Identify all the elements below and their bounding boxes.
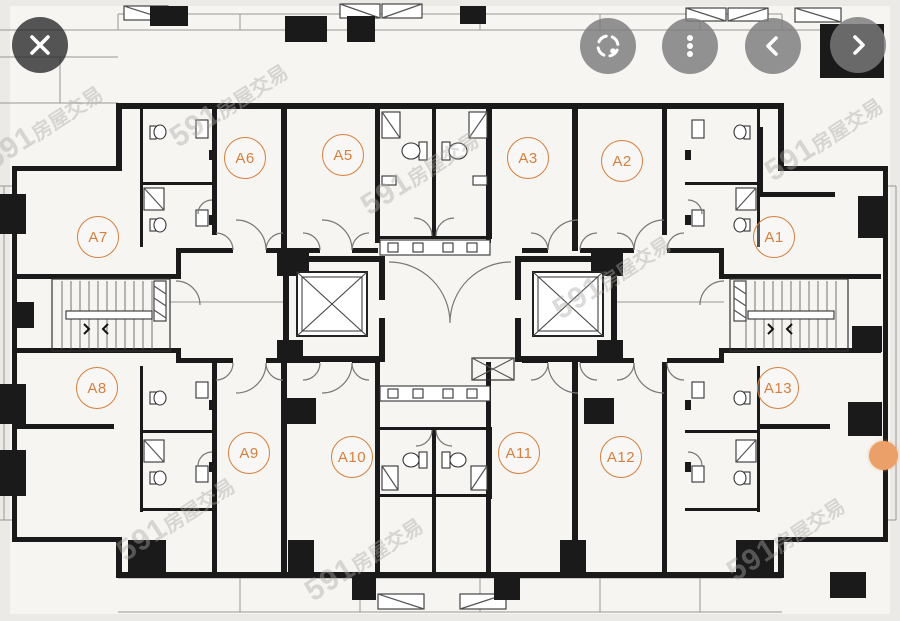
floor-area — [10, 6, 890, 614]
page-indicator-dot — [869, 441, 898, 470]
chevron-right-icon — [844, 31, 872, 59]
unit-label-a11: A11 — [498, 432, 540, 474]
close-icon — [27, 32, 53, 58]
unit-label-a8: A8 — [76, 367, 118, 409]
unit-label-a10: A10 — [331, 436, 373, 478]
scan-button[interactable] — [580, 18, 636, 74]
next-button[interactable] — [830, 17, 886, 73]
scan-icon — [593, 31, 623, 61]
unit-label-a12: A12 — [600, 436, 642, 478]
chevron-left-icon — [759, 32, 787, 60]
unit-label-a13: A13 — [757, 367, 799, 409]
kebab-menu-icon — [676, 32, 704, 60]
unit-label-a2: A2 — [601, 140, 643, 182]
unit-label-a7: A7 — [77, 216, 119, 258]
unit-label-a6: A6 — [224, 137, 266, 179]
more-button[interactable] — [662, 18, 718, 74]
close-button[interactable] — [12, 17, 68, 73]
unit-label-a3: A3 — [507, 137, 549, 179]
image-viewer-stage: A6 A5 A3 A2 A7 A1 A8 A13 A9 A10 A11 A12 — [0, 0, 900, 621]
prev-button[interactable] — [745, 18, 801, 74]
unit-label-a5: A5 — [322, 134, 364, 176]
unit-label-a9: A9 — [228, 432, 270, 474]
floor-plan — [0, 0, 900, 621]
unit-label-a1: A1 — [753, 216, 795, 258]
